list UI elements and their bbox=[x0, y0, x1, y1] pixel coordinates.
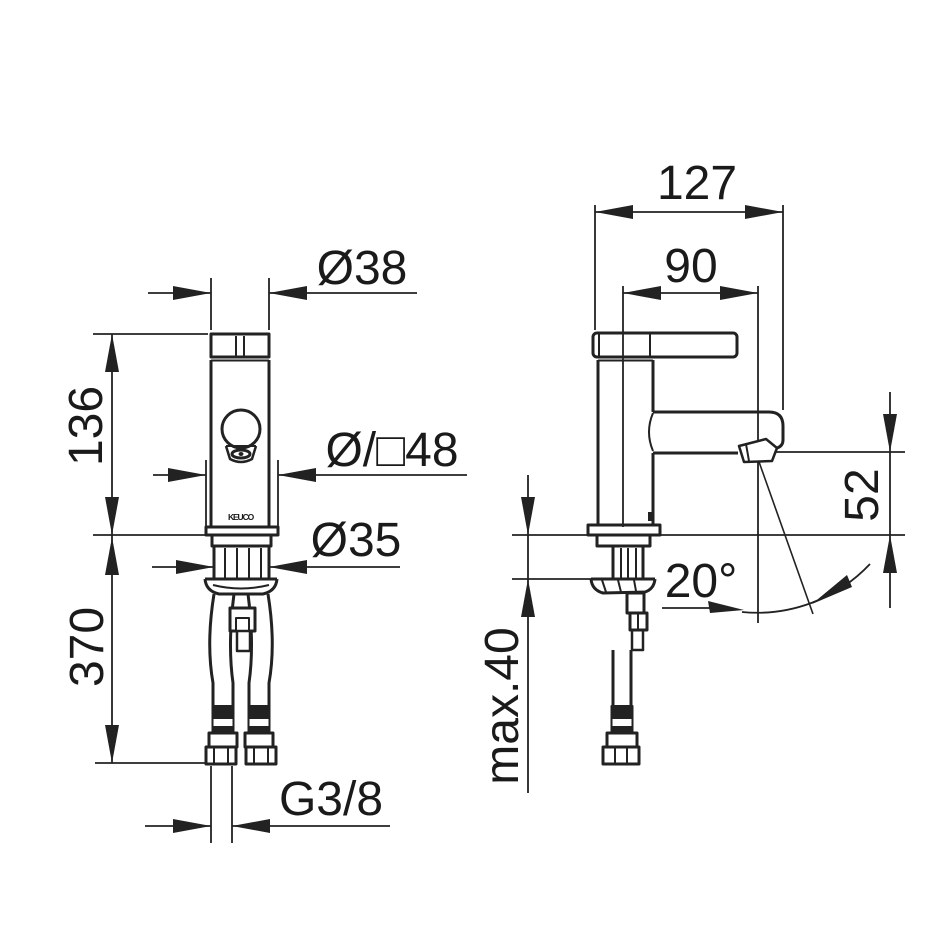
dim-label-370: 370 bbox=[61, 607, 114, 687]
stud-side bbox=[627, 593, 644, 613]
dim-label-dia35: Ø35 bbox=[311, 514, 402, 567]
dim-label-20deg: 20° bbox=[665, 555, 738, 608]
front-view: KEUCO bbox=[60, 242, 467, 843]
dim-label-max40: max.40 bbox=[476, 627, 529, 784]
hose-tube-side bbox=[613, 650, 631, 706]
spray-ball bbox=[222, 410, 260, 448]
aerator-nozzle-side bbox=[739, 439, 777, 462]
washer-inner-line bbox=[213, 585, 269, 589]
stud-block-inner bbox=[236, 618, 249, 631]
body-front bbox=[211, 360, 269, 527]
dim-label-90: 90 bbox=[664, 240, 717, 293]
brand-logo-front: KEUCO bbox=[228, 512, 255, 522]
handle-front bbox=[211, 334, 269, 357]
hose-connector-right bbox=[245, 706, 276, 764]
shank-thread-lines bbox=[225, 548, 261, 578]
dim-label-136: 136 bbox=[60, 386, 113, 466]
dim-label-g38: G3/8 bbox=[279, 773, 383, 826]
side-view: 127 90 52 20° max.40 bbox=[476, 157, 905, 793]
washer-facets bbox=[602, 580, 636, 592]
front-dimension-lines bbox=[112, 293, 467, 826]
technical-drawing-page: KEUCO bbox=[0, 0, 950, 950]
faucet-side bbox=[588, 333, 783, 764]
brand-logo-side-mark bbox=[648, 512, 653, 521]
dim-label-dia38: Ø38 bbox=[317, 242, 408, 295]
stud-stub-front bbox=[237, 631, 250, 651]
dim-label-dia-sq-48: Ø/□48 bbox=[325, 424, 458, 477]
front-extension-lines bbox=[93, 278, 278, 843]
aerator-hole bbox=[239, 452, 244, 456]
handle-lever-side bbox=[593, 333, 737, 357]
body-side bbox=[598, 360, 653, 525]
dim-label-52: 52 bbox=[836, 468, 889, 521]
shank-threads-side bbox=[621, 548, 636, 578]
hose-connector-side bbox=[603, 706, 639, 764]
handle-neck-lines bbox=[236, 336, 244, 356]
faucet-front: KEUCO bbox=[205, 334, 278, 764]
escutcheon-collar-side bbox=[597, 535, 650, 546]
angle-arc bbox=[742, 564, 870, 613]
fastening-washer-side bbox=[591, 579, 655, 593]
spout-body-fillet bbox=[649, 413, 653, 451]
jet-direction-line bbox=[758, 459, 813, 614]
faucet-dimension-drawing: KEUCO bbox=[0, 0, 950, 950]
hose-connector-left bbox=[206, 706, 237, 764]
lever-detail-lines bbox=[599, 334, 650, 356]
escutcheon-collar-front bbox=[212, 535, 271, 546]
dim-label-127: 127 bbox=[657, 157, 737, 210]
stud-stub-side bbox=[632, 630, 643, 650]
